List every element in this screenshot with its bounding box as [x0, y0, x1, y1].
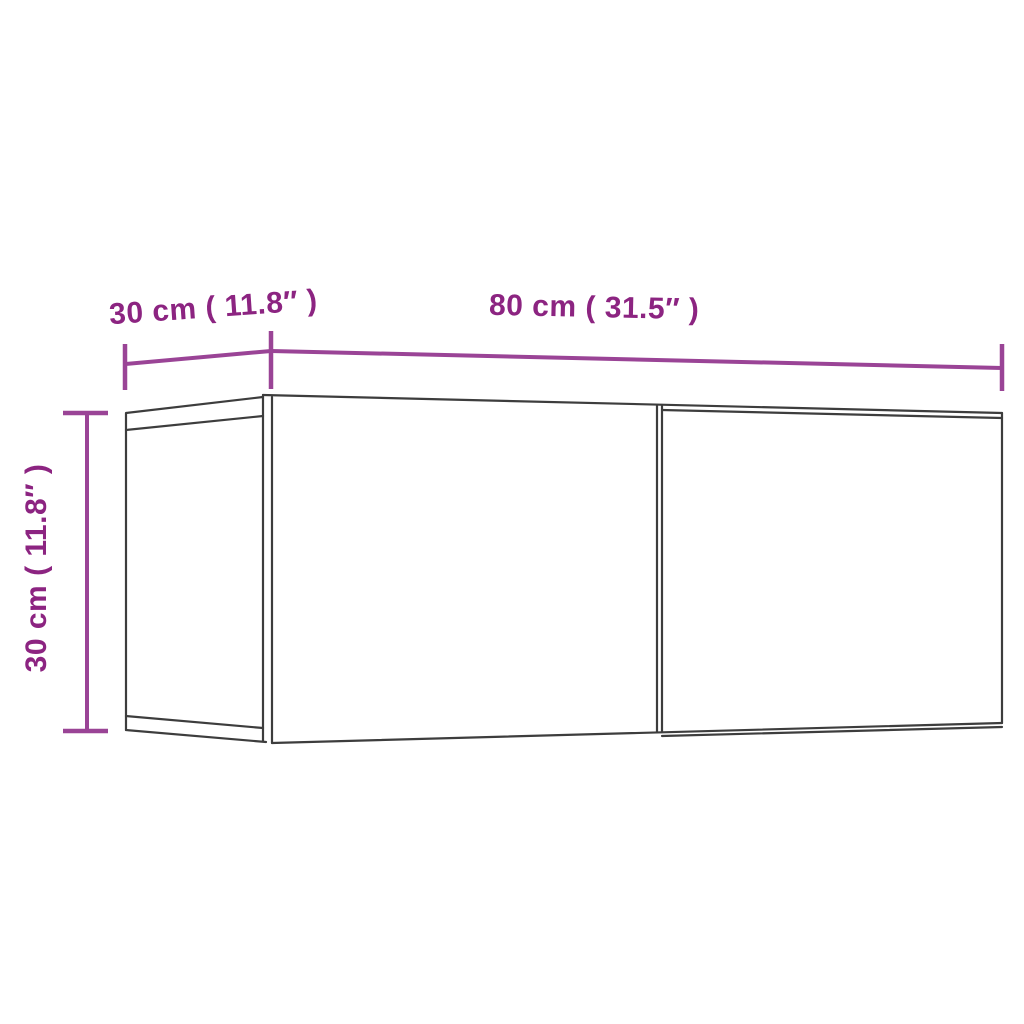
side-panel-left-top-edge: [126, 397, 263, 730]
depth-dim-line: [125, 351, 271, 364]
side-panel-top-rail: [126, 416, 263, 430]
side-panel-bottom-edge: [126, 730, 266, 742]
front-top-edge: [263, 395, 1002, 413]
depth-dimension-label: 30 cm ( 11.8″ ): [108, 284, 318, 331]
side-panel-bottom-rail: [126, 716, 263, 728]
cabinet-dimension-drawing: 30 cm ( 11.8″ ) 80 cm ( 31.5″ ) 30 cm ( …: [0, 0, 1024, 1024]
cabinet-front-face: [263, 395, 1002, 743]
width-dimension: 80 cm ( 31.5″ ): [271, 289, 1002, 391]
width-dim-line: [271, 351, 1002, 368]
dimension-diagram: 30 cm ( 11.8″ ) 80 cm ( 31.5″ ) 30 cm ( …: [0, 0, 1024, 1024]
cabinet-drawing: [126, 395, 1002, 743]
width-dimension-label: 80 cm ( 31.5″ ): [489, 289, 700, 326]
height-dimension: 30 cm ( 11.8″ ): [20, 413, 108, 731]
front-bottom-edge: [272, 723, 1002, 743]
depth-dimension: 30 cm ( 11.8″ ): [108, 284, 318, 390]
height-dimension-label: 30 cm ( 11.8″ ): [20, 464, 53, 673]
cabinet-side-panel: [126, 397, 266, 742]
